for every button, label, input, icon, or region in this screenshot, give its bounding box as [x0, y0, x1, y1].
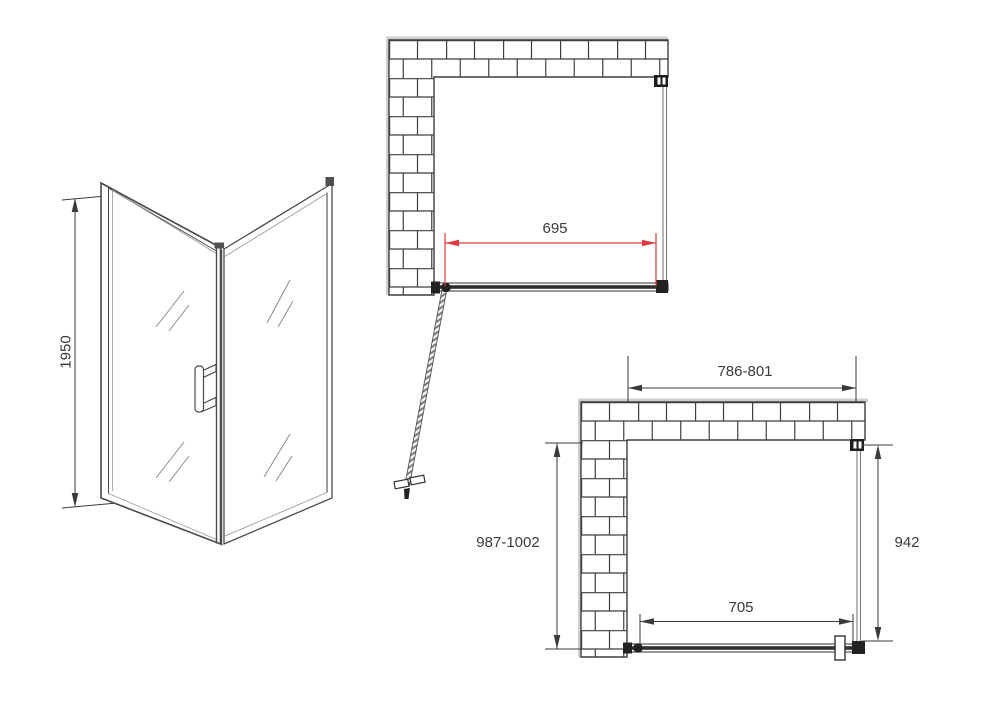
arrowhead-left: [445, 240, 459, 247]
door-frame-outline: [101, 183, 221, 544]
side-panel-dimension: [862, 445, 893, 641]
open-door-foot: [404, 488, 410, 499]
overall-depth-dimension-label: 987-1002: [476, 534, 539, 551]
door-width-dimension: 695: [445, 220, 656, 286]
bracket-slot: [859, 442, 862, 449]
isometric-view: 1950: [58, 177, 335, 546]
drawing-page: 1950: [0, 0, 1000, 707]
open-door-band: [407, 292, 444, 486]
door-width-dimension-label: 695: [542, 220, 567, 237]
side-glass-panel: [857, 443, 861, 650]
front-plan-view: 786-801 987-1002 942: [476, 356, 919, 660]
bracket-slot: [658, 78, 661, 85]
arrowhead-left: [640, 618, 654, 625]
door-panel-3d: [101, 183, 221, 544]
wall-bracket: [654, 75, 668, 87]
door-glass-dimension-label: 705: [728, 599, 753, 616]
corner-connector: [656, 280, 668, 293]
arrowhead-right: [839, 618, 853, 625]
side-panel-cap: [326, 177, 335, 186]
wall-bracket: [850, 439, 864, 451]
bracket-slot: [854, 442, 857, 449]
height-dimension-label: 1950: [58, 335, 75, 368]
arrowhead-left: [628, 385, 642, 392]
arrowhead-up: [72, 198, 79, 212]
bracket-slot: [663, 78, 666, 85]
arrowhead-up: [875, 445, 882, 459]
extension-lines: [640, 614, 853, 646]
side-glass-panel: [663, 86, 667, 284]
extension-lines: [445, 233, 656, 286]
arrowhead-right: [642, 240, 656, 247]
corner-post-cap: [215, 243, 225, 249]
door-profile-core: [437, 285, 665, 289]
door-profile-core: [631, 646, 856, 650]
overall-depth-dimension: [545, 443, 583, 649]
arrowhead-down: [554, 635, 561, 649]
door-handle: [835, 636, 845, 660]
technical-drawing: 1950: [0, 0, 1000, 707]
handle-bar: [195, 366, 204, 412]
corner-connector: [852, 641, 865, 654]
side-panel-outline: [224, 184, 332, 545]
door-profile-bar: [628, 641, 865, 654]
door-profile-bar: [434, 280, 668, 293]
extension-ticks: [545, 443, 583, 649]
overall-width-dimension-label: 786-801: [717, 363, 772, 380]
side-panel-dimension-label: 942: [894, 534, 919, 551]
brick-wall: [581, 402, 865, 657]
door-glass-dimension: [640, 614, 853, 646]
arrowhead-up: [554, 443, 561, 457]
arrowheads: 695: [445, 220, 656, 246]
side-panel-3d: [224, 177, 334, 544]
brick-wall: [389, 40, 668, 295]
open-door-swing: [394, 292, 446, 499]
arrowhead-down: [875, 627, 882, 641]
arrowhead-right: [842, 385, 856, 392]
arrowhead-down: [72, 493, 79, 507]
